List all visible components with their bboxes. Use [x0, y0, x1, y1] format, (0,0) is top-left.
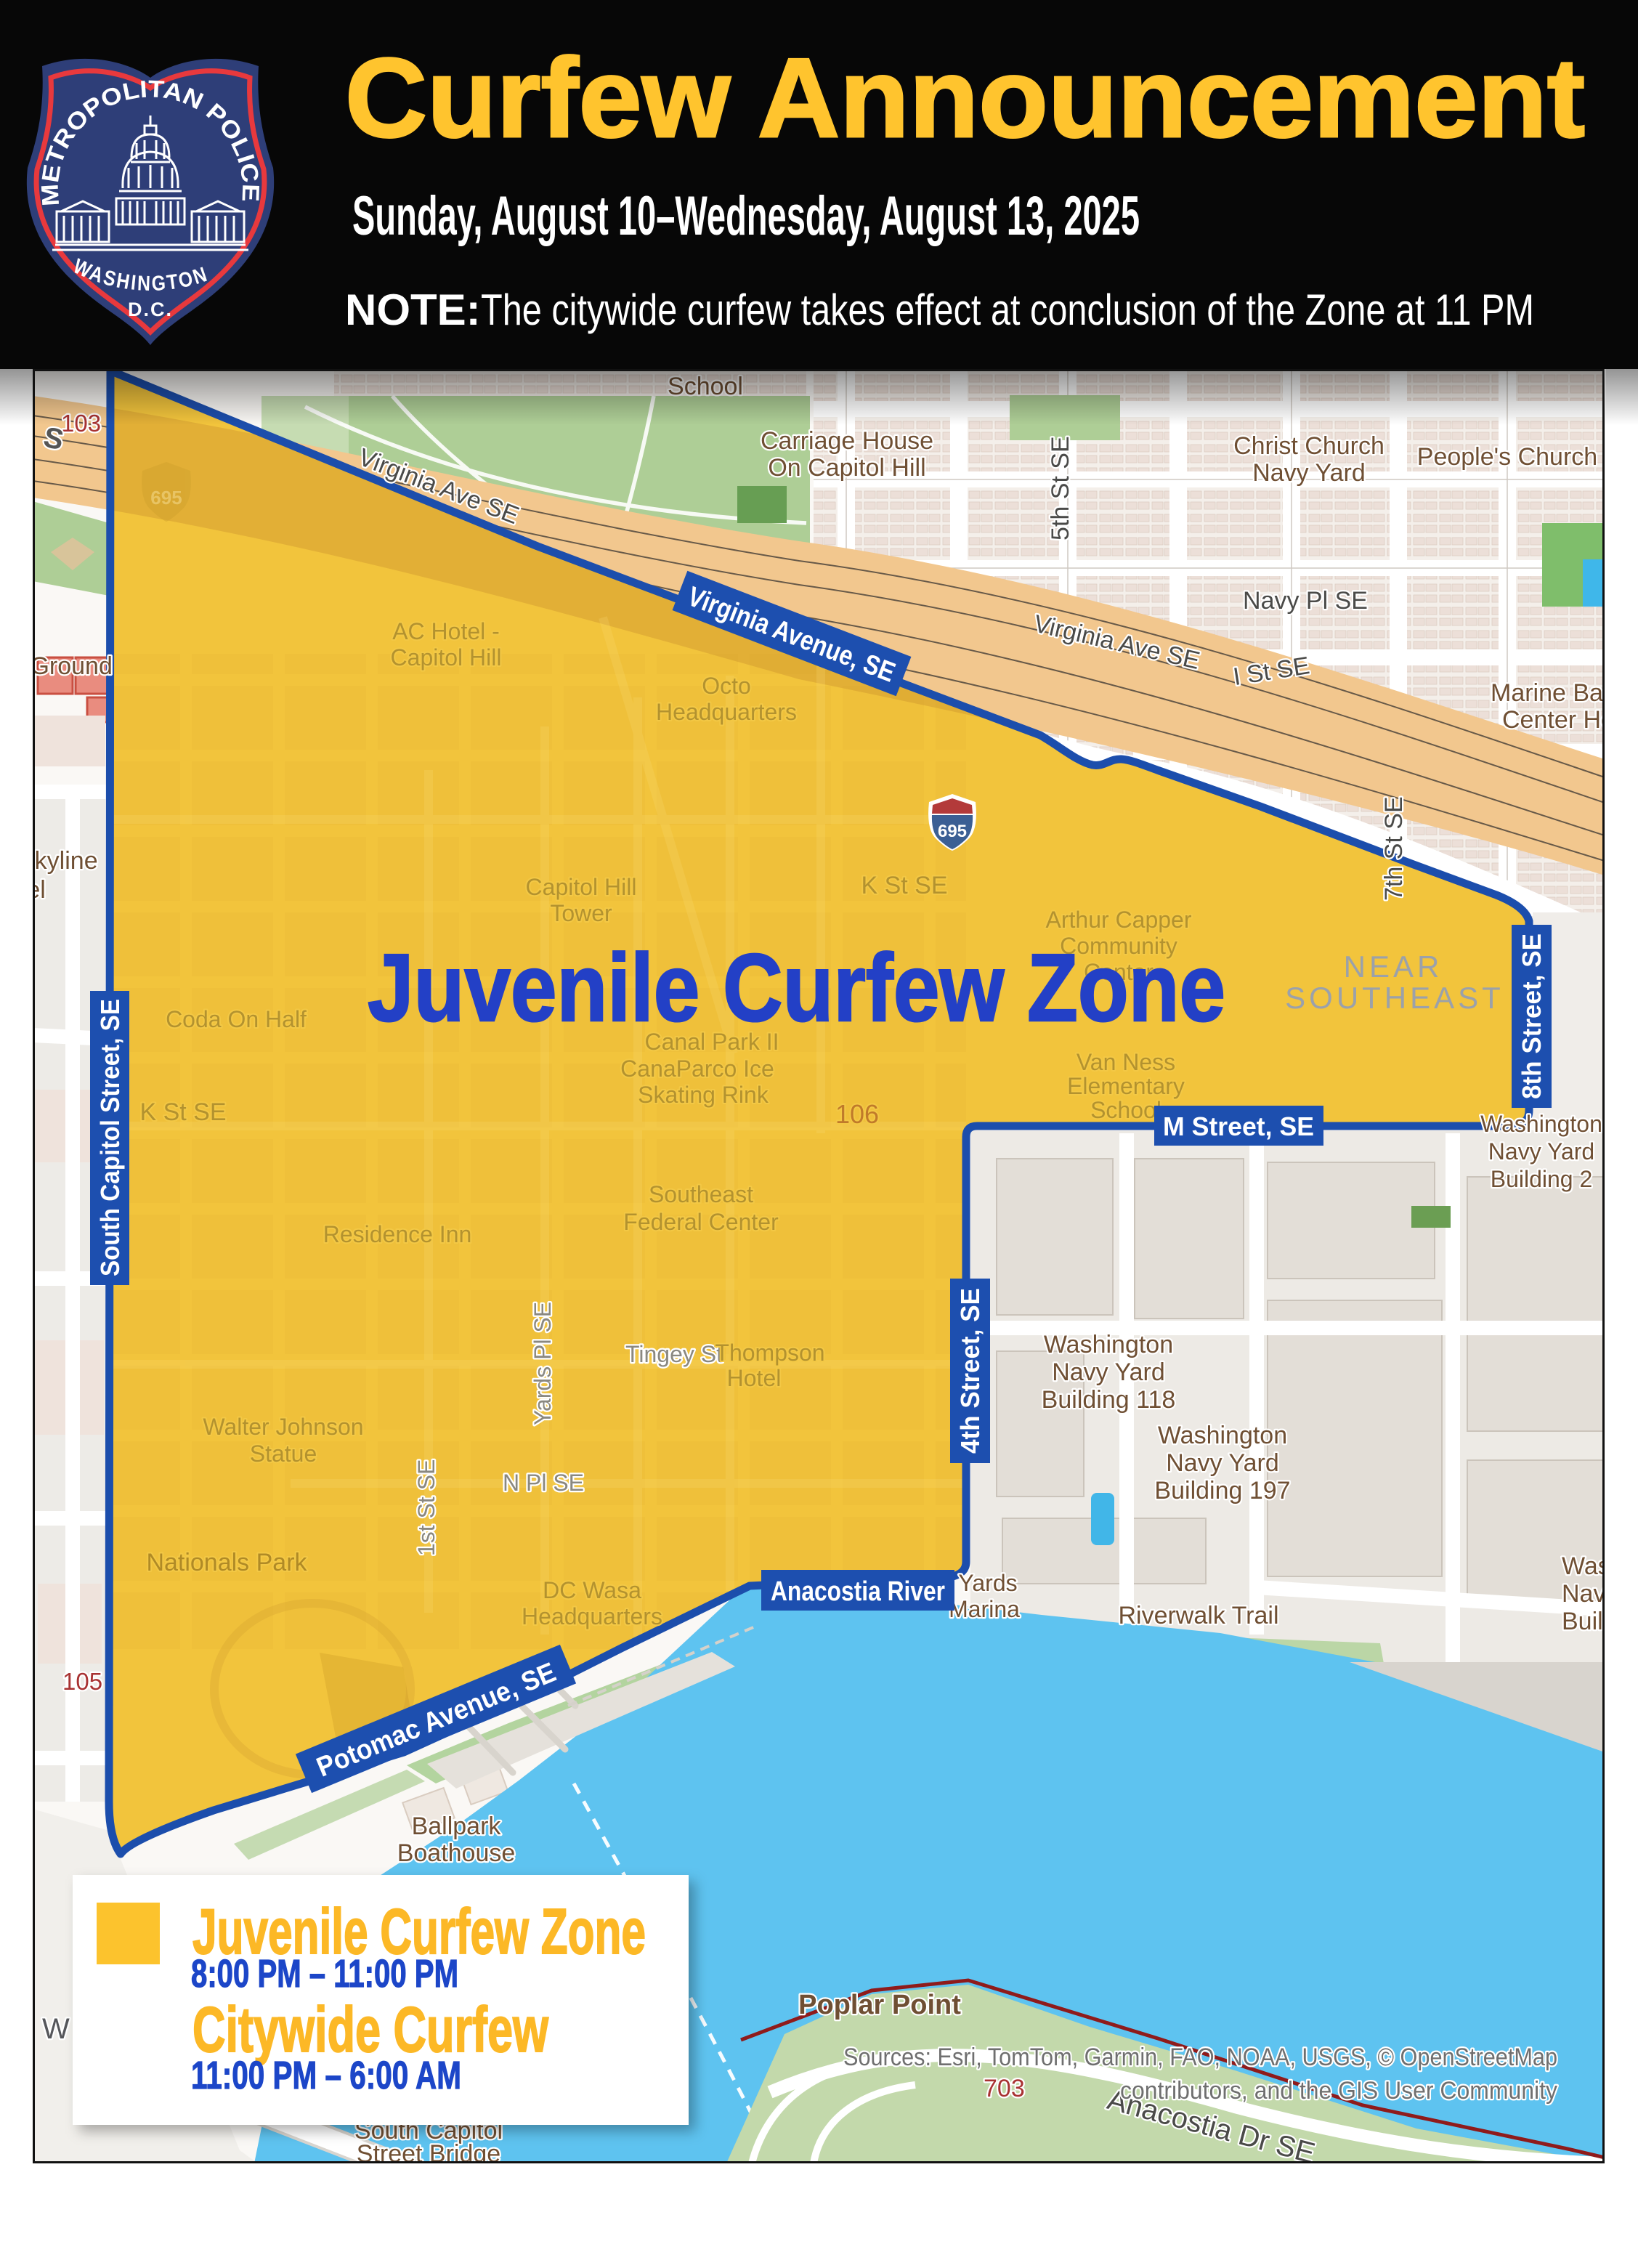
svg-text:5th St SE: 5th St SE — [1047, 436, 1074, 540]
svg-text:Washington: Washington — [1044, 1331, 1173, 1358]
svg-text:Sunday, August 10–Wednesday, A: Sunday, August 10–Wednesday, August 13, … — [352, 185, 1140, 247]
svg-text:Van Ness: Van Ness — [1077, 1049, 1175, 1075]
svg-text:Building 197: Building 197 — [1154, 1477, 1290, 1504]
svg-text:Navy Pl SE: Navy Pl SE — [1243, 587, 1368, 615]
svg-text:SOUTHEAST: SOUTHEAST — [1285, 981, 1504, 1015]
svg-text:Navy Yard: Navy Yard — [1488, 1138, 1594, 1165]
svg-text:Capitol Hill: Capitol Hill — [526, 874, 637, 900]
svg-text:Curfew Announcement: Curfew Announcement — [345, 35, 1585, 161]
svg-text:Tingey St: Tingey St — [625, 1341, 723, 1367]
svg-text:695: 695 — [938, 822, 967, 841]
svg-text:Residence Inn: Residence Inn — [323, 1221, 472, 1247]
svg-text:Navy Yard: Navy Yard — [1052, 1358, 1165, 1386]
svg-text:695: 695 — [150, 487, 182, 509]
svg-text:People's Church: People's Church — [1417, 443, 1597, 471]
svg-text:Navy Yard: Navy Yard — [1252, 459, 1366, 487]
svg-text:School: School — [1090, 1097, 1161, 1123]
svg-text:Statue: Statue — [250, 1441, 317, 1467]
svg-text:Marina: Marina — [949, 1596, 1020, 1622]
svg-text:Federal Center: Federal Center — [623, 1209, 779, 1235]
svg-text:W: W — [42, 2013, 70, 2045]
svg-text:4th Street, SE: 4th Street, SE — [955, 1288, 985, 1454]
svg-text:703: 703 — [984, 2075, 1025, 2102]
svg-text:Ballpark: Ballpark — [412, 1813, 502, 1840]
svg-text:8th Street, SE: 8th Street, SE — [1517, 933, 1546, 1099]
svg-text:The citywide curfew takes effe: The citywide curfew takes effect at conc… — [481, 285, 1534, 334]
svg-text:106: 106 — [835, 1099, 879, 1129]
svg-text:Poplar Point: Poplar Point — [798, 1990, 961, 2020]
svg-text:Navy Yard: Navy Yard — [1166, 1449, 1279, 1477]
svg-text:Anacostia River: Anacostia River — [771, 1576, 945, 1607]
svg-text:Thompson: Thompson — [715, 1340, 824, 1366]
svg-text:N Pl SE: N Pl SE — [503, 1470, 584, 1496]
svg-text:AC Hotel -: AC Hotel - — [392, 618, 500, 644]
svg-text:Boathouse: Boathouse — [397, 1839, 516, 1867]
svg-text:105: 105 — [62, 1668, 102, 1695]
svg-text:Yards Pl SE: Yards Pl SE — [530, 1302, 556, 1425]
svg-text:South Capitol Street, SE: South Capitol Street, SE — [95, 999, 125, 1276]
svg-text:K St SE: K St SE — [139, 1098, 226, 1126]
svg-text:Skating Rink: Skating Rink — [638, 1082, 769, 1108]
svg-text:Yards: Yards — [958, 1570, 1017, 1596]
svg-text:Southeast: Southeast — [649, 1181, 753, 1207]
svg-text:DC Wasa: DC Wasa — [543, 1577, 641, 1603]
svg-text:Sources: Esri, TomTom, Garmin,: Sources: Esri, TomTom, Garmin, FAO, NOAA… — [843, 2044, 1557, 2071]
svg-text:Juvenile Curfew Zone: Juvenile Curfew Zone — [368, 934, 1225, 1041]
svg-text:1st St SE: 1st St SE — [413, 1459, 439, 1556]
svg-text:D.C.: D.C. — [128, 299, 173, 320]
svg-text:Hotel: Hotel — [727, 1365, 782, 1391]
svg-text:Capitol Hill: Capitol Hill — [391, 644, 502, 671]
svg-text:Walter Johnson: Walter Johnson — [203, 1414, 363, 1440]
svg-text:Headquarters: Headquarters — [656, 699, 797, 725]
svg-text:Arthur Capper: Arthur Capper — [1046, 907, 1192, 933]
svg-text:Tower: Tower — [550, 900, 612, 926]
svg-text:8:00 PM – 11:00 PM: 8:00 PM – 11:00 PM — [191, 1952, 458, 1996]
svg-text:Elementary: Elementary — [1067, 1073, 1185, 1099]
svg-text:Headquarters: Headquarters — [522, 1603, 662, 1629]
svg-text:contributors, and the GIS User: contributors, and the GIS User Community — [1120, 2077, 1557, 2105]
svg-text:K St SE: K St SE — [861, 872, 947, 899]
svg-text:Riverwalk Trail: Riverwalk Trail — [1118, 1602, 1278, 1629]
svg-text:CanaParco Ice: CanaParco Ice — [620, 1056, 774, 1082]
svg-text:NOTE:: NOTE: — [345, 285, 481, 334]
svg-text:On Capitol Hill: On Capitol Hill — [768, 454, 925, 482]
svg-text:Coda On Half: Coda On Half — [166, 1006, 307, 1032]
svg-text:NEAR: NEAR — [1344, 949, 1443, 984]
svg-text:Building 2: Building 2 — [1491, 1166, 1593, 1192]
svg-text:7th St SE: 7th St SE — [1380, 796, 1408, 901]
svg-text:11:00 PM – 6:00 AM: 11:00 PM – 6:00 AM — [191, 2054, 461, 2097]
svg-text:Building 118: Building 118 — [1042, 1386, 1176, 1414]
svg-text:Washington: Washington — [1480, 1111, 1602, 1137]
svg-text:Nationals Park: Nationals Park — [146, 1549, 307, 1576]
svg-text:M Street, SE: M Street, SE — [1163, 1111, 1314, 1141]
svg-text:Washington: Washington — [1158, 1422, 1287, 1449]
svg-text:Octo: Octo — [702, 673, 751, 699]
